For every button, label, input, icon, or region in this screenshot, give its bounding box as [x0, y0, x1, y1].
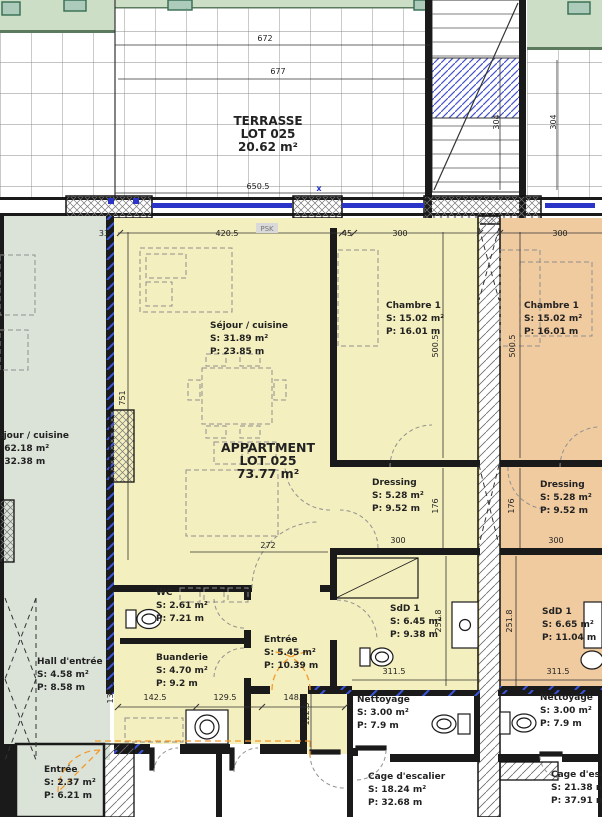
- svg-text:650.5: 650.5: [247, 182, 270, 191]
- svg-text:300: 300: [552, 229, 567, 238]
- shaft-column: [478, 216, 500, 817]
- svg-text:148.5: 148.5: [284, 693, 307, 702]
- svg-text:129.5: 129.5: [214, 693, 237, 702]
- svg-text:251.8: 251.8: [505, 610, 514, 633]
- svg-text:751: 751: [118, 390, 127, 405]
- room-label-sdd1-right: SdD 1S: 6.65 m²P: 11.04 m: [542, 606, 596, 645]
- svg-text:45: 45: [342, 229, 352, 238]
- room-label-dressing-main: DressingS: 5.28 m²P: 9.52 m: [372, 477, 424, 516]
- room-label-hall-entree: Hall d'entréeS: 4.58 m²P: 8.58 m: [37, 656, 103, 695]
- room-label-chambre1-main: Chambre 1S: 15.02 m²P: 16.01 m: [386, 300, 444, 339]
- room-label-chambre1-right: Chambre 1S: 15.02 m²P: 16.01 m: [524, 300, 582, 339]
- svg-text:176: 176: [507, 498, 516, 513]
- floor-plan: 672 677 650.5 304 304 33 420.5 45 300 30…: [0, 0, 602, 817]
- room-label-entree-main: EntréeS: 5.45 m²P: 10.39 m: [264, 634, 318, 673]
- room-label-cage-escalier-center: Cage d'escalierS: 18.24 m²P: 32.68 m: [368, 771, 445, 810]
- svg-text:139.5: 139.5: [106, 681, 115, 704]
- room-label-cage-escalier-right: Cage d'escalierS: 21.38 m²P: 37.91 m: [551, 769, 602, 808]
- staircase-top: [425, 0, 526, 222]
- room-label-entree-left: EntréeS: 2.37 m²P: 6.21 m: [44, 764, 96, 803]
- svg-text:300: 300: [392, 229, 407, 238]
- room-label-nettoyage-right: NettoyageS: 3.00 m²P: 7.9 m: [540, 692, 593, 731]
- room-label-nettoyage-center: NettoyageS: 3.00 m²P: 7.9 m: [357, 694, 410, 733]
- svg-text:500.5: 500.5: [508, 335, 517, 358]
- svg-text:142.5: 142.5: [144, 693, 167, 702]
- svg-text:176: 176: [431, 498, 440, 513]
- svg-text:304: 304: [549, 114, 558, 129]
- room-label-sdd1-main: SdD 1S: 6.45 m²P: 9.38 m: [390, 603, 442, 642]
- room-label-wc: WCS: 2.61 m²P: 7.21 m: [156, 587, 208, 626]
- svg-text:304: 304: [492, 114, 501, 129]
- terrasse-label: TERRASSELOT 02520.62 m²: [205, 114, 331, 153]
- room-label-sejour-cuisine-main: Séjour / cuisineS: 31.89 m²P: 23.85 m: [210, 320, 288, 359]
- svg-text:122.3: 122.3: [302, 703, 311, 726]
- svg-text:33: 33: [99, 229, 109, 238]
- room-label-sejour-cuisine-left: Séjour / cuisineS: 62.18 m²P: 32.38 m: [0, 430, 69, 469]
- apartment-lot-label: APPARTMENTLOT 02573.77 m²: [210, 440, 326, 479]
- svg-text:672: 672: [257, 34, 272, 43]
- psk-tag: PSK: [260, 225, 274, 233]
- room-label-buanderie: BuanderieS: 4.70 m²P: 9.2 m: [156, 652, 208, 691]
- svg-text:311.5: 311.5: [383, 667, 406, 676]
- svg-text:311.5: 311.5: [547, 667, 570, 676]
- svg-text:272: 272: [260, 541, 275, 550]
- svg-text:420.5: 420.5: [216, 229, 239, 238]
- svg-text:677: 677: [270, 67, 285, 76]
- svg-text:300: 300: [548, 536, 563, 545]
- window-axis-marker: x: [316, 184, 322, 193]
- room-label-dressing-right: DressingS: 5.28 m²P: 9.52 m: [540, 479, 592, 518]
- svg-text:300: 300: [390, 536, 405, 545]
